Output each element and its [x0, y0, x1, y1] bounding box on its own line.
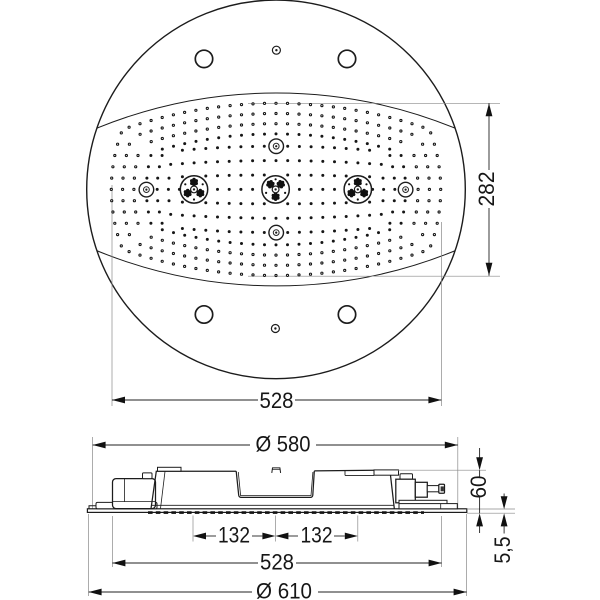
svg-text:132: 132: [218, 523, 250, 548]
svg-text:528: 528: [260, 550, 294, 575]
svg-text:Ø 610: Ø 610: [256, 579, 312, 600]
svg-text:60: 60: [466, 476, 491, 499]
svg-text:528: 528: [260, 388, 294, 413]
svg-text:5,5: 5,5: [490, 537, 515, 564]
svg-text:282: 282: [474, 172, 499, 207]
svg-text:132: 132: [301, 523, 333, 548]
svg-text:Ø 580: Ø 580: [256, 432, 311, 457]
